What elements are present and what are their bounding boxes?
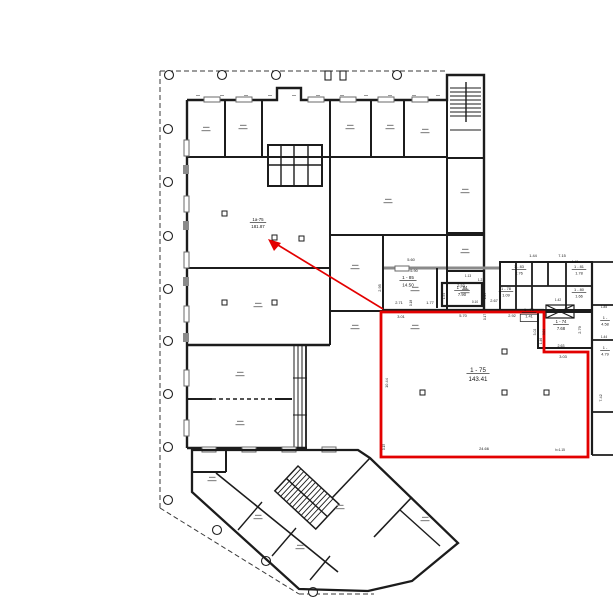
illegible-room-label xyxy=(351,325,360,329)
boundary-marker-circle xyxy=(213,526,222,535)
micro-dimension-mark xyxy=(340,95,344,96)
illegible-room-label xyxy=(346,125,355,129)
room-area: 2.76 xyxy=(515,271,523,276)
illegible-room-label xyxy=(461,249,470,253)
boundary-marker-circle xyxy=(164,178,173,187)
dimension-label: 1.44 xyxy=(601,335,607,339)
illegible-room-label xyxy=(386,125,395,129)
room-number: 1 - 85 xyxy=(402,275,414,280)
room-area: 1.66 xyxy=(575,294,583,299)
illegible-room-label xyxy=(202,127,211,131)
boundary-marker-circle xyxy=(164,125,173,134)
dimension-label: 5.90 xyxy=(410,268,418,273)
boundary-marker-circle xyxy=(164,496,173,505)
room-area: 1.09 xyxy=(502,293,510,298)
dimension-label: 1.85 xyxy=(601,305,607,309)
illegible-room-label xyxy=(254,303,263,307)
dimension-label: 0.10 xyxy=(472,300,478,304)
dimension-label: 3.02 xyxy=(533,329,537,336)
micro-dimension-mark xyxy=(436,95,440,96)
boundary-marker-circle xyxy=(218,71,227,80)
boundary-marker-circle xyxy=(165,71,174,80)
dimension-label: 2.63 xyxy=(558,344,565,348)
dimension-label: 24.66 xyxy=(479,446,489,451)
illegible-room-label xyxy=(296,545,305,549)
micro-dimension-mark xyxy=(388,95,392,96)
lower-building-walls xyxy=(192,450,458,591)
dimension-label: 1.77 xyxy=(426,300,434,305)
dimension-label: 5.70 xyxy=(459,313,467,318)
highlighted-room-outline xyxy=(381,312,588,457)
room-area: 14.50 xyxy=(402,282,414,287)
dimension-label: 2.67 xyxy=(490,298,498,303)
dimension-label: h=1.15 xyxy=(555,448,565,452)
dimension-label: 1.46 xyxy=(539,338,543,344)
relocation-arrow xyxy=(268,239,383,309)
illegible-room-label xyxy=(236,372,245,376)
illegible-room-label xyxy=(351,265,360,269)
room-area: 4.58 xyxy=(601,322,609,327)
micro-dimension-mark xyxy=(412,95,416,96)
boundary-marker-circle xyxy=(164,390,173,399)
room-area: 1.78 xyxy=(575,271,583,276)
floor-plan-canvas: 1a-75181.871 - 8514.501 - 847.901 - 832.… xyxy=(0,0,613,600)
labels-layer: 1a-75181.871 - 8514.501 - 847.901 - 832.… xyxy=(250,217,610,452)
dimension-label: 2.95 xyxy=(377,284,382,292)
illegible-room-label xyxy=(421,517,430,521)
main-outer-wall xyxy=(187,75,484,311)
wc-cluster xyxy=(268,145,322,186)
dimension-label: 1.42 xyxy=(572,260,578,264)
duct-shaft xyxy=(293,345,307,448)
main-building-walls xyxy=(187,75,500,448)
dimension-label: 1.54 xyxy=(442,293,446,299)
boundary-marker-circle xyxy=(164,443,173,452)
dimension-label: 7.42 xyxy=(598,394,603,402)
floor-plan-drawing: 1a-75181.871 - 8514.501 - 847.901 - 832.… xyxy=(0,0,613,600)
illegible-room-label xyxy=(384,199,393,203)
dimension-label: 2.79 xyxy=(577,326,582,334)
boundary-marker-circle xyxy=(164,337,173,346)
dimension-label: 3.03 xyxy=(559,354,567,359)
room-number: 1 - 75 xyxy=(470,367,486,374)
boundary-markers xyxy=(164,71,402,597)
stairwell-icon xyxy=(450,82,481,130)
room-number: 1 - 81 xyxy=(574,264,584,269)
illegible-room-label xyxy=(254,515,263,519)
micro-dimension-mark xyxy=(316,95,320,96)
dimension-label: 2.92 xyxy=(508,313,516,318)
room-number: 1 - 80 xyxy=(574,287,585,292)
micro-dimension-mark xyxy=(220,95,224,96)
dimension-label: 0.17 xyxy=(483,314,487,320)
dimension-label: 0.15 xyxy=(382,444,386,450)
room-number: 1 - 83 xyxy=(514,264,524,269)
illegible-room-label xyxy=(236,421,245,425)
room-area: 181.87 xyxy=(251,224,265,229)
micro-dimension-mark xyxy=(292,95,296,96)
dimension-label: 1.44 xyxy=(529,253,537,258)
boundary-marker-square xyxy=(340,71,346,80)
illegible-microtext-layer xyxy=(196,95,470,549)
dimension-label: 5.60 xyxy=(407,257,415,262)
dimension-label: 1.42 xyxy=(555,298,561,302)
illegible-room-label xyxy=(411,287,420,291)
room-area: 4.79 xyxy=(601,352,609,357)
illegible-room-label xyxy=(461,189,470,193)
room-number: 1a-75 xyxy=(252,217,264,222)
micro-dimension-mark xyxy=(244,95,248,96)
relocation-arrow-line xyxy=(273,242,383,309)
room-number: 1 - 74 xyxy=(556,319,567,324)
room-number: 1 - xyxy=(603,345,608,350)
room-number: 1 - xyxy=(603,315,608,320)
micro-dimension-mark xyxy=(196,95,200,96)
illegible-room-label xyxy=(411,325,420,329)
dimension-label: 0.18 xyxy=(409,300,413,306)
boundary-marker-square xyxy=(325,71,331,80)
dimension-label: 2.53 xyxy=(457,283,465,288)
illegible-room-label xyxy=(239,125,248,129)
dimension-label: 1.64 xyxy=(483,293,487,299)
boundary-marker-circle xyxy=(393,71,402,80)
dimension-label: 1.21 xyxy=(478,278,484,282)
dimension-label: 2.71 xyxy=(395,300,403,305)
boundary-marker-circle xyxy=(272,71,281,80)
dimension-label: 7.15 xyxy=(558,253,566,258)
room-number: 1 - 79 xyxy=(524,307,534,312)
boundary-marker-circle xyxy=(164,232,173,241)
lower-stairwell-icon xyxy=(275,466,339,529)
dimension-label: 3.04 xyxy=(542,329,546,335)
illegible-room-label xyxy=(208,477,217,481)
dimension-label: 3.01 xyxy=(397,314,405,319)
micro-dimension-mark xyxy=(268,95,272,96)
boundary-diagonal xyxy=(160,508,299,594)
room-area: 7.68 xyxy=(557,326,566,331)
boundary-marker-circle xyxy=(164,285,173,294)
room-area: 143.41 xyxy=(469,376,488,383)
dimension-label: 1.13 xyxy=(465,274,471,278)
relocation-arrow-head xyxy=(268,239,281,251)
dimension-label: 10.44 xyxy=(384,377,389,388)
room-number: 1 - 78 xyxy=(501,286,511,291)
illegible-room-label xyxy=(421,129,430,133)
micro-dimension-mark xyxy=(364,95,368,96)
